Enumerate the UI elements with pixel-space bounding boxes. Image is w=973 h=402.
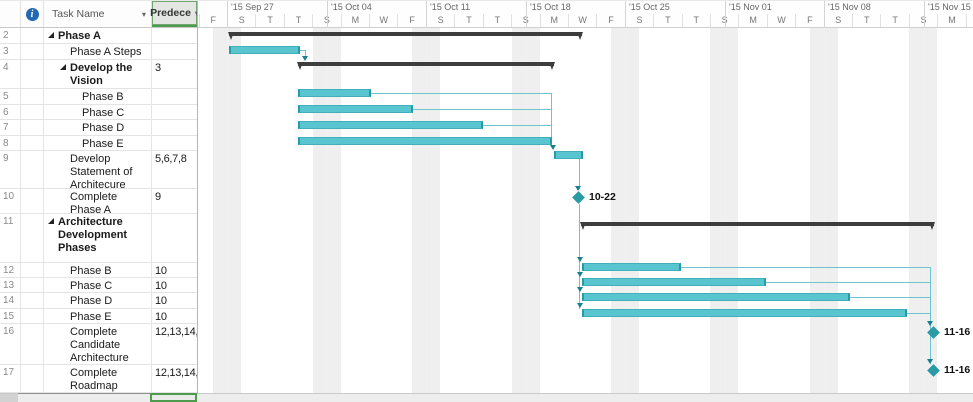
indicators-cell[interactable] — [21, 60, 44, 89]
task-row-number[interactable]: 7 — [0, 120, 21, 136]
task-table-header: i Task Name ▾ Predece ▾ — [0, 1, 197, 28]
predecessors-cell[interactable] — [152, 120, 197, 136]
predecessors-cell[interactable] — [152, 214, 197, 263]
link-line — [766, 282, 930, 283]
summary-bar[interactable] — [298, 62, 554, 66]
timeline-day-label: M — [540, 14, 568, 27]
task-row-number[interactable]: 6 — [0, 105, 21, 120]
gantt-bar[interactable] — [229, 46, 300, 54]
summary-bar[interactable] — [229, 32, 582, 36]
task-name-header-label: Task Name — [52, 8, 105, 20]
table-row[interactable]: 10Complete Phase A9 — [0, 189, 197, 214]
task-name-cell[interactable]: Phase E — [44, 136, 152, 151]
timeline-week-label: '15 Nov 01 — [729, 2, 772, 12]
timeline-week-label: '15 Oct 04 — [331, 2, 372, 12]
gantt-bar[interactable] — [582, 293, 850, 301]
timeline-day-label: T — [483, 14, 511, 27]
timeline-week-label: '15 Oct 11 — [430, 2, 470, 12]
timeline-day-label: T — [255, 14, 283, 27]
indicators-cell[interactable] — [21, 136, 44, 151]
timeline-day-label: F — [596, 14, 624, 27]
indicators-cell[interactable] — [21, 189, 44, 214]
timeline-day-label: T — [284, 14, 312, 27]
link-line — [579, 159, 580, 189]
task-name-cell[interactable]: Phase C — [44, 105, 152, 120]
task-row-number[interactable]: 13 — [0, 278, 21, 293]
timeline-day-label: T — [880, 14, 908, 27]
indicators-cell[interactable] — [21, 278, 44, 293]
table-row[interactable]: 11Architecture Development Phases — [0, 214, 197, 263]
task-name-cell[interactable]: Phase C — [44, 278, 152, 293]
predecessors-cell[interactable]: 10 — [152, 263, 197, 278]
msproject-gantt-view: i Task Name ▾ Predece ▾ 2Phase A3Phase A… — [0, 0, 973, 402]
timeline-day-label: W — [369, 14, 397, 27]
task-row-number[interactable]: 12 — [0, 263, 21, 278]
task-row-number[interactable]: 15 — [0, 309, 21, 324]
table-row[interactable]: 15Phase E10 — [0, 309, 197, 324]
task-row-number[interactable]: 10 — [0, 189, 21, 214]
task-name-cell[interactable]: Develop the Vision — [44, 60, 152, 89]
timeline-week-tick — [426, 1, 427, 28]
link-line — [483, 125, 551, 126]
task-row-number[interactable]: 8 — [0, 136, 21, 151]
timeline-week-label: '15 Sep 27 — [231, 2, 274, 12]
gantt-bar[interactable] — [582, 278, 766, 286]
task-name-cell[interactable]: Phase A — [44, 28, 152, 44]
gantt-body: 10-2211-1611-16 — [197, 28, 973, 393]
timeline-day-label: T — [682, 14, 710, 27]
week-gridline — [924, 28, 925, 393]
timeline-week-label: '15 Oct 25 — [629, 2, 670, 12]
week-gridline — [625, 28, 626, 393]
table-row[interactable]: 16Complete Candidate Architecture12,13,1… — [0, 324, 197, 365]
timeline-day-label: S — [227, 14, 255, 27]
timeline-week-tick — [725, 1, 726, 28]
table-chart-divider[interactable] — [197, 1, 198, 393]
timeline-day-label: T — [653, 14, 681, 27]
predecessors-cell[interactable] — [152, 89, 197, 105]
indicators-cell[interactable] — [21, 309, 44, 324]
expand-collapse-icon[interactable] — [48, 32, 54, 38]
timeline-week-label: '15 Nov 15 — [928, 2, 971, 12]
task-name-cell[interactable]: Phase B — [44, 89, 152, 105]
task-row-number[interactable]: 11 — [0, 214, 21, 263]
week-gridline — [426, 28, 427, 393]
timeline-day-label: S — [426, 14, 454, 27]
predecessors-cell[interactable]: 9 — [152, 189, 197, 214]
table-row[interactable]: 14Phase D10 — [0, 293, 197, 309]
task-name-cell[interactable]: Complete Candidate Architecture — [44, 324, 152, 365]
week-gridline — [824, 28, 825, 393]
link-arrow-icon — [577, 303, 583, 308]
task-name-cell[interactable]: Phase A Steps — [44, 44, 152, 60]
predecessors-cell[interactable]: 3 — [152, 60, 197, 89]
predecessors-cell[interactable]: 12,13,14,15 — [152, 324, 197, 365]
task-row-number[interactable]: 17 — [0, 365, 21, 393]
indicators-cell[interactable] — [21, 89, 44, 105]
timeline-day-label: F — [795, 14, 823, 27]
table-row[interactable]: 8Phase E — [0, 136, 197, 151]
timeline-week-tick — [625, 1, 626, 28]
predecessors-cell[interactable]: 10 — [152, 309, 197, 324]
indicators-cell[interactable] — [21, 44, 44, 60]
milestone-label: 10-22 — [589, 191, 616, 203]
timeline-day-label: M — [341, 14, 369, 27]
timeline-header[interactable]: FSTTSMWFSTTSMWFSTTSMWFSTTSMW'15 Sep 27'1… — [197, 1, 973, 28]
table-row[interactable]: 4Develop the Vision3 — [0, 60, 197, 89]
week-gridline — [725, 28, 726, 393]
link-arrow-icon — [577, 257, 583, 262]
link-line — [930, 267, 931, 364]
timeline-day-label: W — [767, 14, 795, 27]
task-name-cell[interactable]: Phase D — [44, 120, 152, 136]
predecessors-header-label: Predece — [150, 7, 191, 19]
timeline-day-label: S — [824, 14, 852, 27]
task-name-cell[interactable]: Architecture Development Phases — [44, 214, 152, 263]
gantt-chart: FSTTSMWFSTTSMWFSTTSMWFSTTSMW'15 Sep 27'1… — [197, 1, 973, 393]
task-name-column-header[interactable]: Task Name ▾ — [44, 1, 152, 27]
task-row-number[interactable]: 9 — [0, 151, 21, 189]
predecessors-cell[interactable] — [152, 44, 197, 60]
predecessors-cell[interactable] — [152, 28, 197, 44]
task-name-cell[interactable]: Complete Roadmap — [44, 365, 152, 393]
gantt-bar[interactable] — [554, 151, 583, 159]
link-arrow-icon — [927, 359, 933, 364]
predecessors-cell[interactable]: 10 — [152, 293, 197, 309]
link-line — [681, 267, 930, 268]
indicators-cell[interactable] — [21, 28, 44, 44]
link-line — [413, 109, 551, 110]
gantt-bar[interactable] — [298, 105, 413, 113]
task-row-number[interactable]: 5 — [0, 89, 21, 105]
gantt-bar[interactable] — [298, 89, 371, 97]
info-icon: i — [26, 8, 39, 21]
link-line — [850, 297, 930, 298]
week-gridline — [526, 28, 527, 393]
link-arrow-icon — [577, 287, 583, 292]
timeline-week-tick — [526, 1, 527, 28]
link-arrow-icon — [302, 56, 308, 61]
link-arrow-icon — [927, 321, 933, 326]
task-row-number[interactable]: 16 — [0, 324, 21, 365]
table-row[interactable]: 2Phase A — [0, 28, 197, 44]
summary-bar[interactable] — [581, 222, 934, 226]
task-name-cell[interactable]: Phase B — [44, 263, 152, 278]
indicators-cell[interactable] — [21, 263, 44, 278]
indicators-cell[interactable] — [21, 324, 44, 365]
gantt-bar[interactable] — [298, 121, 483, 129]
task-name-cell[interactable]: Develop Statement of Architecure Work — [44, 151, 152, 189]
milestone-label: 11-16 — [944, 364, 970, 376]
expand-collapse-icon[interactable] — [48, 218, 54, 224]
link-line — [907, 313, 930, 314]
gantt-bar[interactable] — [582, 263, 681, 271]
indicators-cell[interactable] — [21, 293, 44, 309]
milestone-label: 11-16 — [944, 326, 970, 338]
week-gridline — [327, 28, 328, 393]
indicators-column-header[interactable]: i — [21, 1, 44, 27]
task-name-cell[interactable]: Phase E — [44, 309, 152, 324]
timeline-day-label: F — [397, 14, 425, 27]
table-row[interactable]: 13Phase C10 — [0, 278, 197, 293]
table-row[interactable]: 6Phase C — [0, 105, 197, 120]
indicators-cell[interactable] — [21, 151, 44, 189]
link-line — [371, 93, 551, 94]
task-name-cell[interactable]: Complete Phase A — [44, 189, 152, 214]
timeline-week-tick — [924, 1, 925, 28]
expand-collapse-icon[interactable] — [60, 64, 66, 70]
task-row-number[interactable]: 4 — [0, 60, 21, 89]
task-row-number[interactable]: 3 — [0, 44, 21, 60]
timeline-day-label: W — [966, 14, 973, 27]
predecessors-cell[interactable] — [152, 105, 197, 120]
timeline-week-tick — [227, 1, 228, 28]
timeline-week-label: '15 Oct 18 — [530, 2, 571, 12]
timeline-day-label: T — [852, 14, 880, 27]
timeline-week-tick — [327, 1, 328, 28]
timeline-day-label: F — [199, 14, 227, 27]
indicators-cell[interactable] — [21, 120, 44, 136]
task-name-cell[interactable]: Phase D — [44, 293, 152, 309]
predecessors-column-header[interactable]: Predece ▾ — [152, 1, 197, 27]
table-row[interactable]: 17Complete Roadmap12,13,14,15 — [0, 365, 197, 393]
timeline-week-label: '15 Nov 08 — [828, 2, 871, 12]
gantt-bar[interactable] — [298, 137, 552, 145]
row-number-column-header[interactable] — [0, 1, 21, 27]
table-row[interactable]: 5Phase B — [0, 89, 197, 105]
task-row-number[interactable]: 14 — [0, 293, 21, 309]
predecessors-cell[interactable]: 10 — [152, 278, 197, 293]
task-name-filter-arrow-icon[interactable]: ▾ — [142, 10, 146, 19]
timeline-day-label: M — [738, 14, 766, 27]
predecessors-cell[interactable]: 5,6,7,8 — [152, 151, 197, 189]
gantt-bar[interactable] — [582, 309, 907, 317]
indicators-cell[interactable] — [21, 105, 44, 120]
link-arrow-icon — [550, 145, 556, 150]
milestone-diamond[interactable] — [572, 191, 585, 204]
task-table: i Task Name ▾ Predece ▾ 2Phase A3Phase A… — [0, 1, 197, 393]
timeline-day-label: T — [454, 14, 482, 27]
link-arrow-icon — [577, 272, 583, 277]
timeline-day-label: S — [625, 14, 653, 27]
indicators-cell[interactable] — [21, 365, 44, 393]
table-row[interactable]: 12Phase B10 — [0, 263, 197, 278]
table-row[interactable]: 7Phase D — [0, 120, 197, 136]
table-row[interactable]: 9Develop Statement of Architecure Work5,… — [0, 151, 197, 189]
week-gridline — [227, 28, 228, 393]
timeline-day-label: W — [568, 14, 596, 27]
timeline-week-tick — [824, 1, 825, 28]
table-row[interactable]: 3Phase A Steps — [0, 44, 197, 60]
timeline-day-label: M — [937, 14, 965, 27]
task-row-number[interactable]: 2 — [0, 28, 21, 44]
predecessors-cell[interactable] — [152, 136, 197, 151]
predecessors-cell[interactable]: 12,13,14,15 — [152, 365, 197, 393]
indicators-cell[interactable] — [21, 214, 44, 263]
